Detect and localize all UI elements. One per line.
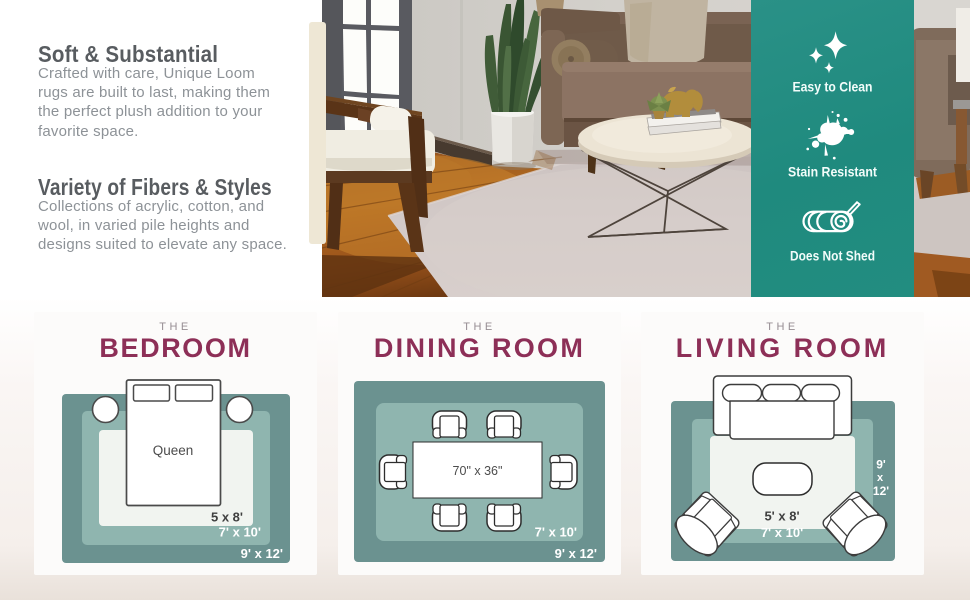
svg-text:5' x 8': 5' x 8' <box>764 509 799 524</box>
svg-text:x: x <box>877 472 884 484</box>
svg-text:9': 9' <box>876 458 886 472</box>
svg-text:7' x 10': 7' x 10' <box>219 525 261 540</box>
svg-text:Queen: Queen <box>153 443 194 458</box>
svg-text:Easy to Clean: Easy to Clean <box>793 79 873 95</box>
svg-text:Stain Resistant: Stain Resistant <box>788 164 877 180</box>
svg-text:9' x 12': 9' x 12' <box>555 546 597 561</box>
svg-text:70" x 36": 70" x 36" <box>453 464 503 478</box>
svg-text:5 x 8': 5 x 8' <box>211 510 243 525</box>
svg-text:Does Not Shed: Does Not Shed <box>790 248 875 264</box>
svg-text:12': 12' <box>873 484 889 498</box>
svg-text:9' x 12': 9' x 12' <box>241 546 283 561</box>
svg-text:7' x 10': 7' x 10' <box>761 525 803 540</box>
svg-text:7' x 10': 7' x 10' <box>535 525 577 540</box>
